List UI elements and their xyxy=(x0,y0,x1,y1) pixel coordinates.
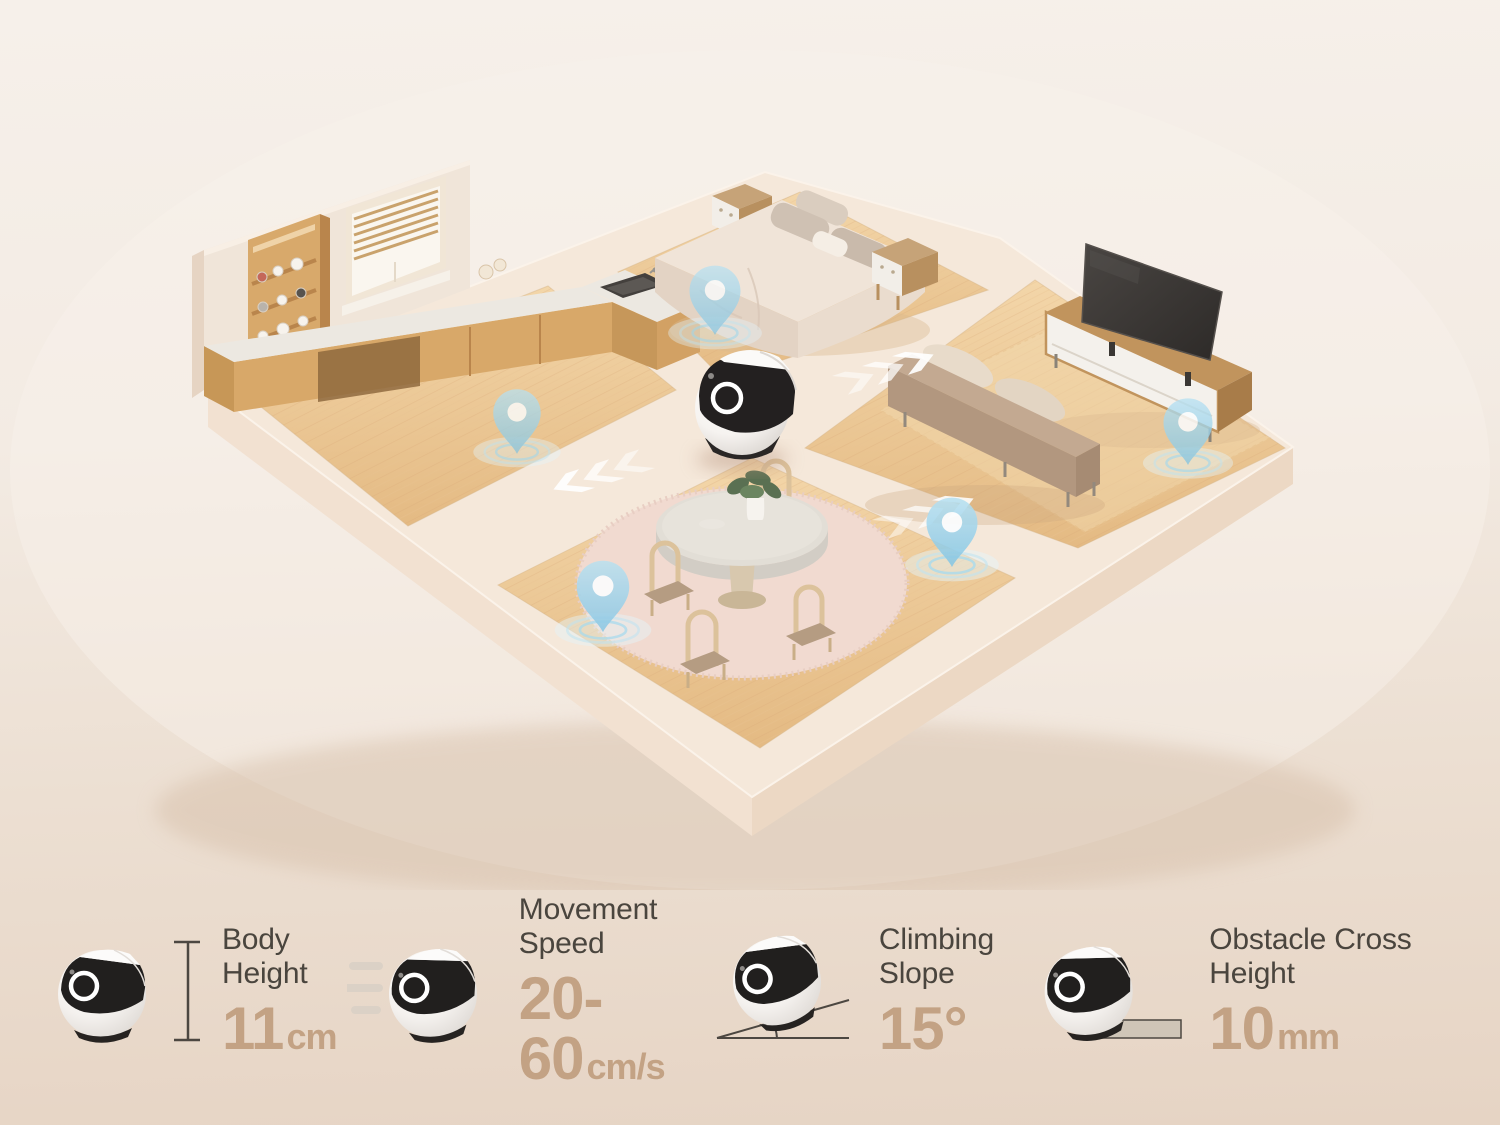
robot-speed-icon xyxy=(347,932,497,1050)
spec-unit: cm xyxy=(286,1016,336,1057)
motion-streaks xyxy=(347,962,383,1014)
robot-slope-icon xyxy=(707,932,857,1050)
spec-unit: mm xyxy=(1277,1016,1339,1057)
robot-front-icon xyxy=(50,932,200,1050)
spec-text: Obstacle Cross Height 10mm xyxy=(1209,923,1454,1059)
spec-value: 20-60cm/s xyxy=(519,969,707,1089)
spec-climbing-slope: Climbing Slope 15° xyxy=(707,923,1037,1059)
robot-obstacle-icon xyxy=(1037,932,1187,1050)
spec-text: Movement Speed 20-60cm/s xyxy=(519,893,707,1089)
spec-obstacle-cross-height: Obstacle Cross Height 10mm xyxy=(1037,923,1454,1059)
spec-value: 10mm xyxy=(1209,999,1454,1059)
spec-label: Movement Speed xyxy=(519,893,707,961)
spec-value: 15° xyxy=(879,999,1037,1059)
spec-label: Obstacle Cross Height xyxy=(1209,923,1454,991)
spec-strip: Body Height 11cm Movement Speed 20-60cm/… xyxy=(0,896,1500,1086)
spec-label: Climbing Slope xyxy=(879,923,1037,991)
spec-text: Climbing Slope 15° xyxy=(879,923,1037,1059)
spec-value: 11cm xyxy=(222,999,347,1059)
spec-movement-speed: Movement Speed 20-60cm/s xyxy=(347,893,707,1089)
height-measure-line xyxy=(174,942,200,1040)
home-scene-illustration xyxy=(0,0,1500,890)
spec-text: Body Height 11cm xyxy=(222,923,347,1059)
spec-body-height: Body Height 11cm xyxy=(50,923,347,1059)
spec-label: Body Height xyxy=(222,923,347,991)
spec-unit: cm/s xyxy=(587,1046,665,1087)
page: Body Height 11cm Movement Speed 20-60cm/… xyxy=(0,0,1500,1125)
